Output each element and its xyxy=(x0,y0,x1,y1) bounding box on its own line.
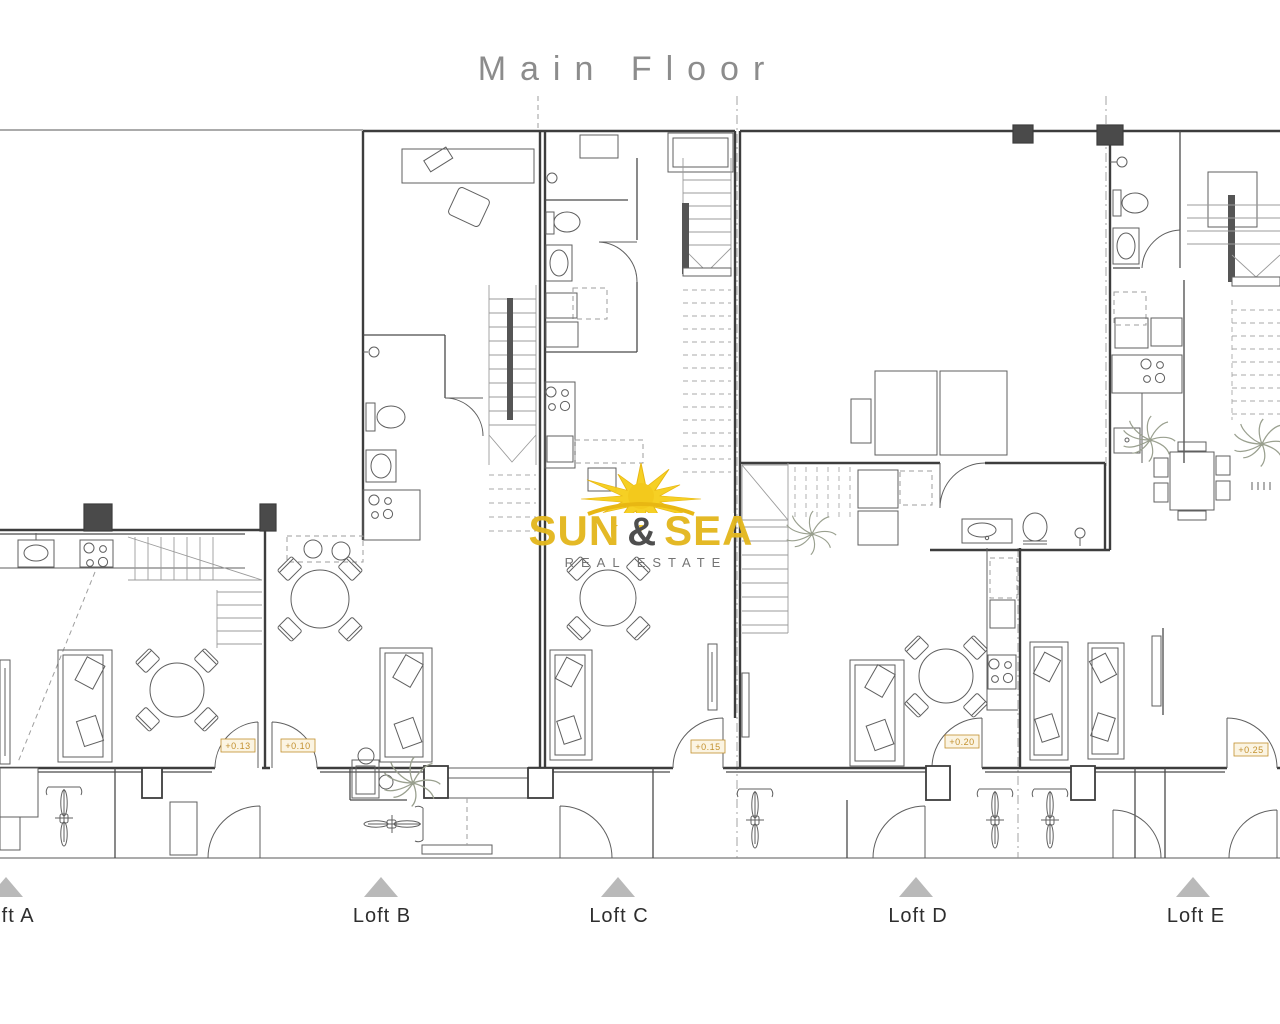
bicycle-icon xyxy=(364,806,423,842)
loft-marker-a: Loft A xyxy=(0,877,35,927)
nightstand xyxy=(851,399,871,443)
svg-text:+0.20: +0.20 xyxy=(949,737,974,747)
toilet-icon xyxy=(366,403,375,431)
bicycle-icon xyxy=(737,789,773,848)
logo: SUN&SEA REAL ESTATE xyxy=(529,463,754,570)
bed xyxy=(851,371,1007,455)
plant-icon xyxy=(787,511,836,555)
stove-icon xyxy=(369,495,393,519)
sofa-a xyxy=(58,650,112,762)
loft-a-unit xyxy=(0,504,276,764)
bathroom-d xyxy=(858,463,1085,546)
logo-wordmark: SUN&SEA xyxy=(529,507,754,554)
elevation-badge-d: +0.20 xyxy=(945,735,979,748)
staircase-b xyxy=(489,285,536,531)
plant-icon xyxy=(1235,419,1280,467)
kitchen-b xyxy=(287,490,420,562)
svg-text:Loft D: Loft D xyxy=(888,905,947,927)
elevation-badge-e: +0.25 xyxy=(1234,743,1268,756)
svg-text:+0.13: +0.13 xyxy=(225,741,250,751)
loft-marker-c: Loft C xyxy=(589,877,648,927)
dining-table-a xyxy=(135,648,218,731)
shower-icon xyxy=(1117,157,1127,167)
sofa-e1 xyxy=(1030,642,1068,760)
svg-text:+0.15: +0.15 xyxy=(695,742,720,752)
staircase-c xyxy=(683,158,731,472)
elevation-badge-b: +0.10 xyxy=(281,739,315,752)
elevation-markers: +0.13 +0.10 +0.15 +0.20 +0.25 xyxy=(221,735,1268,756)
loft-c-unit xyxy=(545,133,733,760)
stove-icon xyxy=(989,659,1013,683)
bicycle-icon xyxy=(1032,789,1068,848)
dining-table-e xyxy=(1154,442,1230,520)
staircase-a xyxy=(128,537,262,648)
triangle-marker-icon xyxy=(1176,877,1210,897)
kitchen-c xyxy=(545,382,643,491)
loft-marker-d: Loft D xyxy=(888,877,947,927)
sink-icon xyxy=(379,775,393,789)
elevation-badge-c: +0.15 xyxy=(691,740,725,753)
svg-text:Loft C: Loft C xyxy=(589,905,648,927)
svg-text:Loft A: Loft A xyxy=(0,905,35,927)
dining-table-d xyxy=(904,635,987,717)
bar-stool xyxy=(304,540,322,558)
svg-text:Loft E: Loft E xyxy=(1167,905,1225,927)
bicycle-icon xyxy=(977,789,1013,848)
kitchen-d xyxy=(987,548,1018,710)
floor-plan-page: +0.13 +0.10 +0.15 +0.20 +0.25 xyxy=(0,0,1280,1024)
bathroom-b xyxy=(363,335,483,482)
loft-markers: Loft A Loft B Loft C Loft D Loft E xyxy=(0,877,1225,927)
desk xyxy=(402,149,534,183)
bathroom-e xyxy=(1110,131,1180,268)
triangle-marker-icon xyxy=(601,877,635,897)
bicycle-icon xyxy=(46,787,82,846)
sofa-b xyxy=(380,648,432,762)
svg-text:+0.25: +0.25 xyxy=(1238,745,1263,755)
sofa-e2 xyxy=(1088,643,1124,759)
stove-icon xyxy=(546,387,570,411)
stove-icon xyxy=(84,543,108,567)
toilet-icon xyxy=(546,212,554,234)
triangle-marker-icon xyxy=(364,877,398,897)
elevation-badge-a: +0.13 xyxy=(221,739,255,752)
stove-icon xyxy=(1141,359,1165,383)
page-title: Main Floor xyxy=(478,50,779,88)
loft-marker-b: Loft B xyxy=(353,877,411,927)
dining-table-b xyxy=(277,556,362,641)
svg-text:+0.10: +0.10 xyxy=(285,741,310,751)
tv-icon xyxy=(1152,636,1161,706)
triangle-marker-icon xyxy=(899,877,933,897)
toilet-icon xyxy=(1113,190,1121,216)
triangle-marker-icon xyxy=(0,877,23,897)
desk-chair xyxy=(447,186,490,228)
svg-text:Loft B: Loft B xyxy=(353,905,411,927)
loft-e-unit xyxy=(1030,125,1280,760)
plant-icon xyxy=(1124,416,1176,462)
loft-marker-e: Loft E xyxy=(1167,877,1225,927)
sofa-d xyxy=(850,660,904,766)
staircase-d xyxy=(742,463,850,633)
entry-porches xyxy=(0,748,1277,858)
staircase-e xyxy=(1187,172,1280,420)
sink-icon xyxy=(1114,428,1140,453)
logo-subtitle: REAL ESTATE xyxy=(565,555,728,570)
bathroom-c xyxy=(545,158,637,352)
floor-plan-drawing: +0.13 +0.10 +0.15 +0.20 +0.25 xyxy=(0,0,1280,1024)
tv-icon xyxy=(742,673,749,737)
loft-b-unit xyxy=(277,147,536,798)
shower-icon xyxy=(1075,528,1085,538)
sofa-c xyxy=(550,650,592,760)
